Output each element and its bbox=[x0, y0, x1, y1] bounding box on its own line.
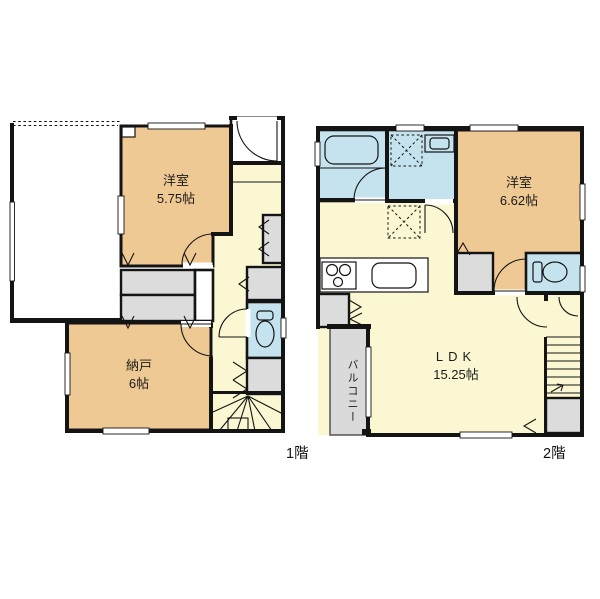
label-floor1: 1階 bbox=[286, 442, 309, 463]
floorplan-drawing bbox=[0, 0, 600, 599]
toilet-room-2f bbox=[526, 253, 582, 293]
closet-hall-lower bbox=[247, 358, 283, 394]
room-size: 15.25帖 bbox=[376, 366, 536, 384]
floorplan-canvas: 洋室 5.75帖 納戸 6帖 洋室 6.62帖 LDK 15.25帖 バルコニー… bbox=[0, 0, 600, 599]
label-floor2: 2階 bbox=[543, 442, 566, 463]
kitchen-counter bbox=[320, 258, 428, 292]
room-name: 洋室 bbox=[456, 174, 582, 192]
room-name: LDK bbox=[376, 348, 536, 366]
closet-1f-a bbox=[121, 270, 195, 295]
label-yoshitsu-1f: 洋室 5.75帖 bbox=[121, 172, 231, 209]
closet-hall-mid bbox=[247, 267, 283, 300]
room-size: 6帖 bbox=[67, 375, 211, 393]
label-nando: 納戸 6帖 bbox=[67, 357, 211, 394]
closet-2f-lower bbox=[546, 398, 582, 433]
room-name: 洋室 bbox=[121, 172, 231, 190]
closet-1f-b bbox=[121, 295, 195, 321]
room-size: 6.62帖 bbox=[456, 192, 582, 210]
label-yoshitsu-2f: 洋室 6.62帖 bbox=[456, 174, 582, 211]
open-area-1f bbox=[10, 122, 123, 324]
room-name: 納戸 bbox=[67, 357, 211, 375]
closet-ldk-left bbox=[318, 294, 349, 327]
window-left-1f bbox=[10, 202, 15, 281]
room-size: 5.75帖 bbox=[121, 190, 231, 208]
balcony-window bbox=[366, 347, 371, 417]
closet-1f-front bbox=[195, 270, 213, 321]
label-balcony: バルコニー bbox=[338, 344, 360, 438]
pillar-notch bbox=[122, 127, 135, 137]
label-ldk: LDK 15.25帖 bbox=[376, 348, 536, 385]
closet-2f bbox=[456, 253, 493, 293]
